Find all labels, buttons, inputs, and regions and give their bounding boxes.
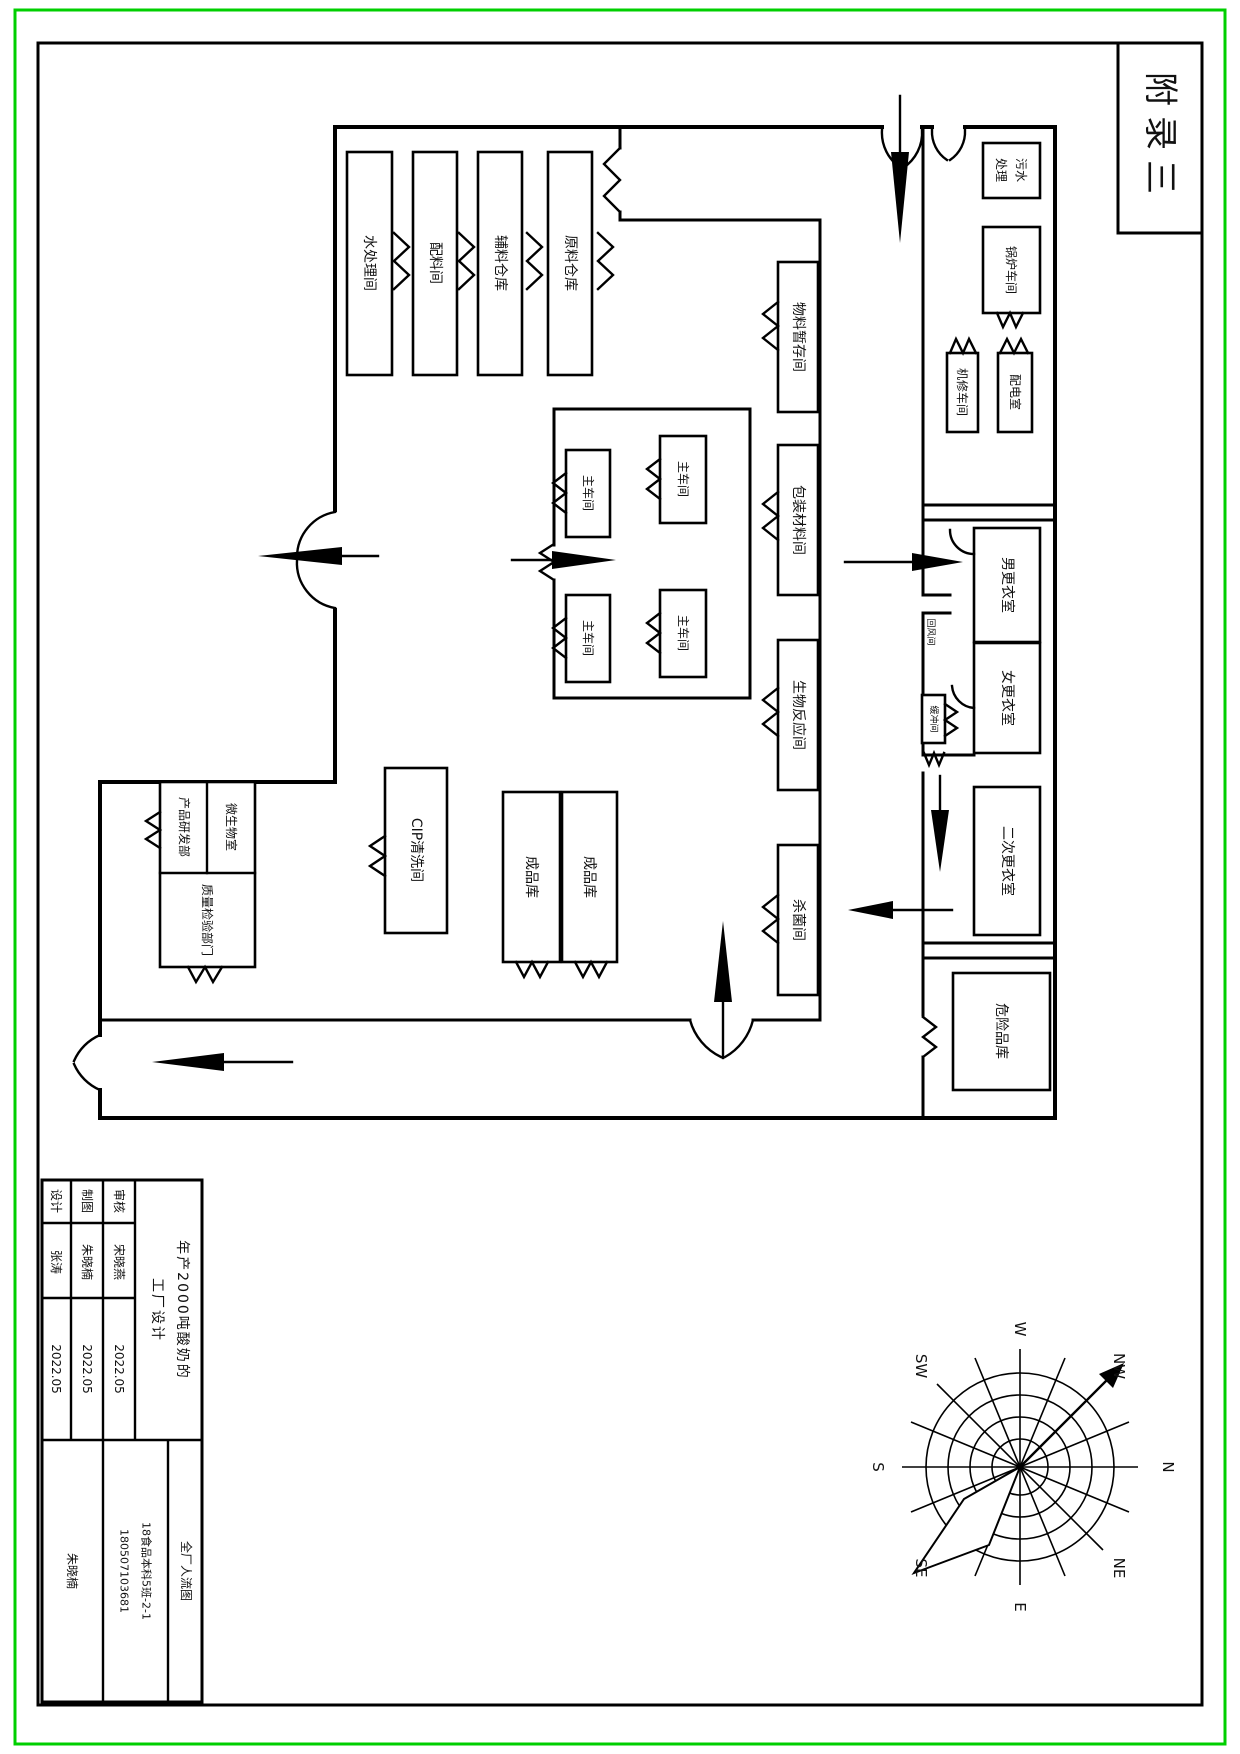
tb-project-title-line1: 年产2000吨酸奶的 — [174, 1240, 190, 1380]
label-packaging: 包装材料间 — [790, 485, 806, 555]
arrow-exit-west-upper — [258, 547, 342, 565]
wind-frequency-lobe — [914, 1467, 1020, 1573]
tb-row3-name: 宋晓燕 — [112, 1244, 127, 1280]
label-bio-reaction: 生物反应间 — [790, 680, 807, 750]
label-raw-warehouse: 原料仓库 — [562, 235, 578, 291]
label-air-return: 回风间 — [925, 618, 937, 645]
label-rnd: 产品研发部 — [177, 797, 192, 857]
label-aux-warehouse: 辅料仓库 — [492, 235, 508, 291]
room-sewage-treatment — [983, 143, 1040, 198]
tb-student-id: 180507103681 — [118, 1529, 131, 1613]
compass-se: SE — [912, 1559, 930, 1578]
label-buffer: 缓冲间 — [928, 705, 940, 732]
label-sewage-1: 污水 — [1014, 158, 1028, 182]
label-male-changing: 男更衣室 — [999, 557, 1016, 613]
tb-row1-date: 2022.05 — [49, 1344, 63, 1394]
label-finished-goods-2: 成品库 — [581, 856, 597, 898]
appendix-label: 附录三 — [1140, 72, 1180, 204]
arrow-into-changing — [912, 553, 963, 571]
tb-project-title-line2: 工厂设计 — [149, 1278, 165, 1342]
label-hazard-storage: 危险品库 — [993, 1003, 1009, 1059]
compass-sw: SW — [912, 1354, 930, 1379]
compass-s: S — [869, 1462, 887, 1472]
label-micro-lab: 微生物室 — [224, 803, 239, 851]
tb-drawing-name: 全厂人流图 — [179, 1541, 194, 1601]
label-material-temp: 物料暂存间 — [790, 302, 806, 372]
compass-w: W — [1011, 1322, 1029, 1337]
label-qc: 质量检验部门 — [200, 884, 215, 956]
arrow-entrance-north — [891, 152, 909, 243]
tb-row3-date: 2022.05 — [112, 1344, 126, 1394]
compass-n: N — [1159, 1461, 1177, 1472]
label-boiler: 锅炉车间 — [1004, 246, 1019, 294]
label-secondary-changing: 二次更衣室 — [999, 826, 1016, 896]
tb-row2-name: 朱晓楠 — [80, 1244, 95, 1280]
label-main-workshop-4: 主车间 — [676, 615, 691, 651]
wind-rose: N NE E SE S SW W NW — [869, 1322, 1177, 1612]
compass-nw: NW — [1110, 1353, 1128, 1379]
tb-class-info: 18食品本科5班-2-1 — [140, 1522, 154, 1620]
drawing-page: 附录三 — [0, 0, 1240, 1754]
label-main-workshop-1: 主车间 — [581, 475, 596, 511]
label-water-treatment: 水处理间 — [361, 235, 377, 291]
compass-ne: NE — [1110, 1558, 1128, 1579]
label-cip: CIP清洗间 — [408, 818, 424, 882]
compass-e: E — [1011, 1602, 1029, 1611]
plant-layout-drawing: 附录三 — [0, 0, 1240, 1754]
label-machine-repair: 机修车间 — [955, 368, 970, 416]
title-block: 设计 张涛 2022.05 制图 朱晓楠 2022.05 审核 宋晓燕 2022… — [42, 1180, 202, 1702]
arrow-entrance-south-up — [714, 921, 732, 1002]
arrow-into-main-workshop — [552, 551, 616, 569]
label-female-changing: 女更衣室 — [999, 670, 1016, 726]
arrow-exit-west-lower — [152, 1053, 224, 1071]
tb-row2-date: 2022.05 — [80, 1344, 94, 1394]
label-sterilization: 杀菌间 — [790, 899, 806, 941]
label-finished-goods-1: 成品库 — [523, 856, 539, 898]
arrow-to-sterilization — [848, 901, 893, 919]
tb-row3-label: 审核 — [112, 1189, 127, 1213]
label-main-workshop-2: 主车间 — [581, 620, 596, 656]
label-sewage-2: 处理 — [994, 158, 1008, 182]
tb-row1-name: 张涛 — [49, 1250, 64, 1274]
label-ingredient: 配料间 — [427, 242, 443, 284]
label-main-workshop-3: 主车间 — [676, 461, 691, 497]
label-electrical: 配电室 — [1008, 374, 1023, 410]
arrow-annex-corridor-down — [931, 810, 949, 872]
tb-row2-label: 制图 — [80, 1189, 94, 1213]
tb-row1-label: 设计 — [49, 1189, 63, 1213]
tb-author: 朱晓楠 — [65, 1553, 80, 1589]
